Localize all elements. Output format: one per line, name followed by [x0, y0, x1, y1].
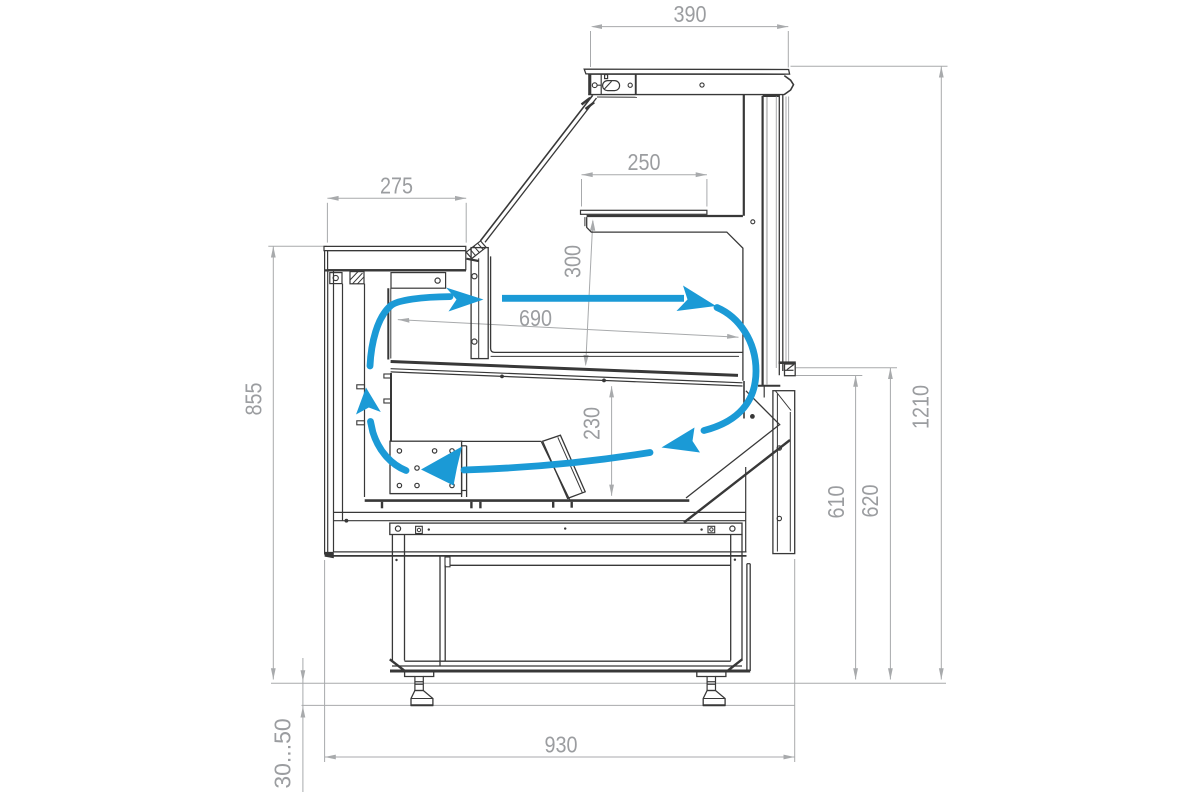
svg-text:30...50: 30...50: [270, 718, 296, 788]
svg-text:300: 300: [560, 245, 586, 278]
svg-text:610: 610: [823, 486, 849, 519]
svg-text:690: 690: [519, 305, 552, 331]
svg-text:230: 230: [579, 407, 605, 440]
svg-text:250: 250: [628, 149, 661, 175]
svg-text:620: 620: [857, 485, 883, 518]
svg-text:1210: 1210: [907, 385, 933, 429]
svg-text:930: 930: [545, 732, 578, 758]
svg-text:855: 855: [241, 383, 267, 416]
svg-text:275: 275: [380, 173, 413, 199]
svg-text:390: 390: [674, 1, 707, 27]
